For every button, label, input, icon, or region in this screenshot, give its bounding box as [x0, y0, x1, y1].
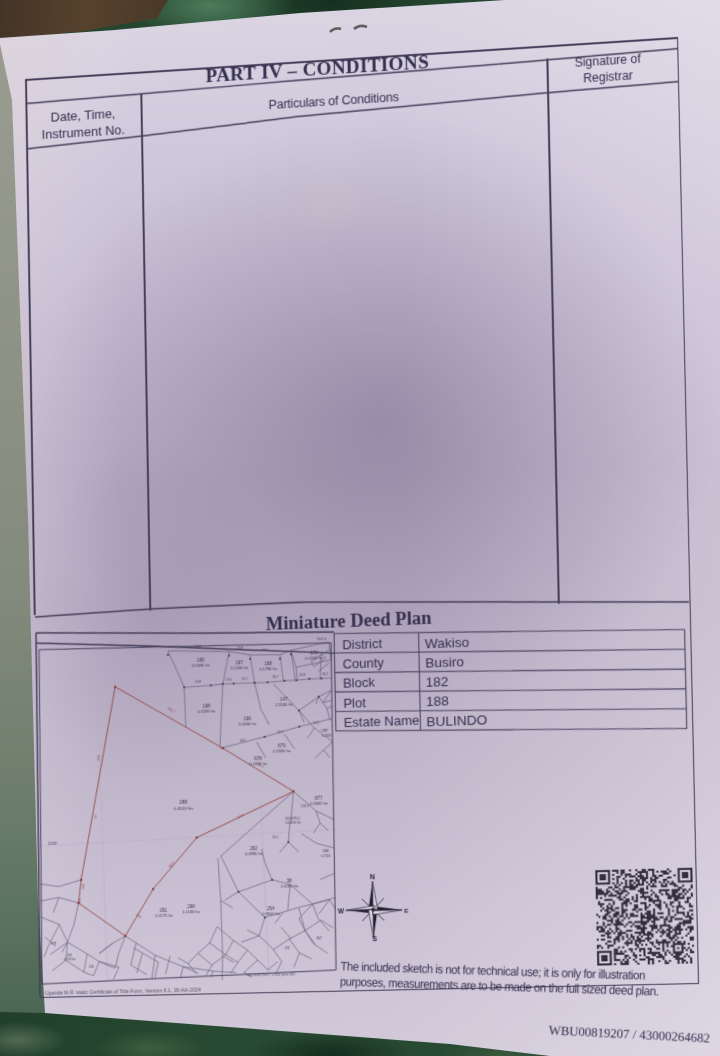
svg-text:0.3230 ha: 0.3230 ha — [198, 708, 216, 714]
svg-text:36.7: 36.7 — [272, 675, 279, 679]
svg-text:20.8: 20.8 — [195, 680, 201, 684]
svg-text:876: 876 — [51, 941, 56, 945]
svg-text:1.887: 1.887 — [321, 729, 329, 733]
svg-text:2.3240 ha: 2.3240 ha — [275, 701, 294, 707]
svg-text:111: 111 — [77, 898, 82, 904]
svg-text:45.7: 45.7 — [277, 730, 284, 734]
svg-text:N: N — [370, 874, 375, 881]
svg-text:40.5: 40.5 — [240, 738, 247, 742]
svg-text:0.716: 0.716 — [321, 854, 330, 858]
svg-text:123: 123 — [81, 884, 86, 890]
svg-text:257: 257 — [285, 946, 290, 950]
svg-text:867: 867 — [317, 936, 322, 940]
svg-text:0.4630 ha: 0.4630 ha — [239, 721, 258, 727]
svg-text:1.0173 ha: 1.0173 ha — [155, 913, 173, 919]
svg-text:97: 97 — [93, 814, 98, 819]
svg-text:0.1230 ha: 0.1230 ha — [231, 665, 250, 671]
svg-text:4.4524 ha: 4.4524 ha — [174, 805, 194, 811]
svg-text:68.9: 68.9 — [168, 861, 175, 869]
svg-text:0.4990 ha: 0.4990 ha — [245, 851, 264, 857]
svg-text:0.3062 ha: 0.3062 ha — [310, 800, 329, 806]
svg-text:57.2: 57.2 — [313, 721, 320, 725]
svg-text:2232: 2232 — [48, 840, 57, 845]
svg-text:0.119 ha: 0.119 ha — [64, 957, 76, 961]
svg-text:31.2: 31.2 — [322, 672, 329, 676]
svg-text:0.3260 ha: 0.3260 ha — [305, 655, 324, 661]
svg-text:186: 186 — [322, 848, 329, 853]
svg-text:1.1180 ha: 1.1180 ha — [182, 909, 200, 915]
svg-text:16.7: 16.7 — [241, 677, 248, 681]
svg-text:29.8: 29.8 — [237, 646, 244, 650]
svg-text:S: S — [372, 936, 377, 943]
svg-text:245: 245 — [89, 965, 94, 969]
svg-text:0.0410 ha: 0.0410 ha — [286, 820, 301, 825]
svg-text:302.7: 302.7 — [167, 706, 176, 714]
svg-text:1.6181 ha: 1.6181 ha — [280, 883, 299, 889]
svg-text:103.3: 103.3 — [301, 804, 309, 808]
svg-text:34.2: 34.2 — [262, 648, 269, 652]
svg-text:0.1790 ha: 0.1790 ha — [259, 666, 278, 672]
svg-text:19.0: 19.0 — [226, 678, 233, 682]
svg-text:30.1: 30.1 — [272, 835, 279, 839]
svg-text:173: 173 — [96, 755, 101, 761]
svg-text:0.2430: 0.2430 — [322, 734, 332, 738]
svg-text:87.6: 87.6 — [237, 813, 245, 820]
svg-text:E: E — [404, 909, 408, 915]
svg-text:0.9912 ha: 0.9912 ha — [262, 911, 281, 917]
svg-text:0.1950 ha: 0.1950 ha — [273, 748, 292, 754]
svg-text:0.2430 ha: 0.2430 ha — [192, 662, 210, 668]
svg-text:41.8: 41.8 — [299, 673, 306, 677]
svg-text:36.6 m: 36.6 m — [317, 637, 327, 642]
svg-text:W: W — [338, 908, 344, 915]
svg-text:30.9: 30.9 — [195, 645, 201, 649]
